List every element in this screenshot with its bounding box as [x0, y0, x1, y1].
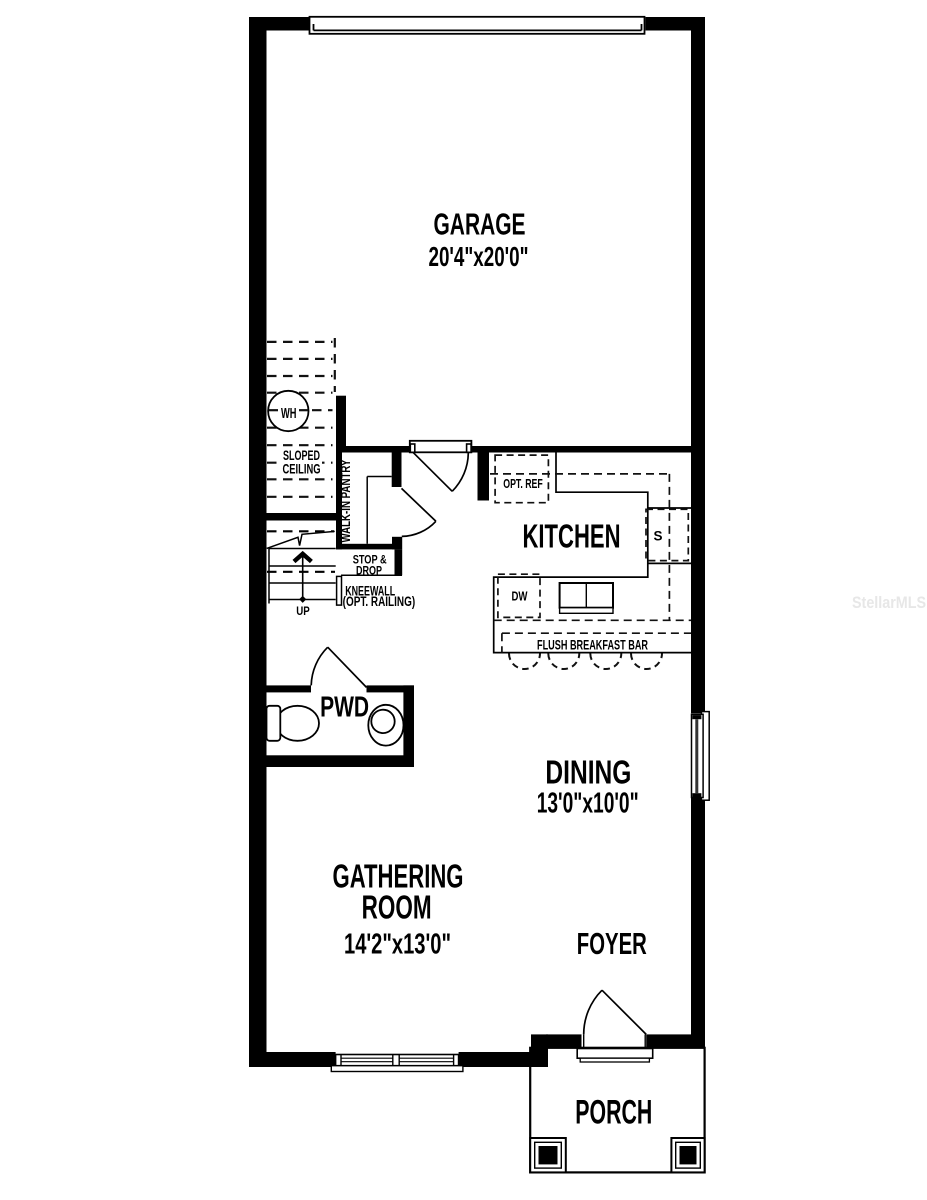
svg-text:CEILING: CEILING [283, 462, 321, 477]
svg-text:DROP: DROP [356, 564, 382, 578]
svg-text:FOYER: FOYER [577, 927, 647, 961]
svg-text:StellarMLS: StellarMLS [852, 593, 926, 612]
svg-text:WH: WH [281, 406, 297, 422]
svg-text:DW: DW [512, 588, 529, 603]
svg-text:OPT. REF: OPT. REF [503, 477, 543, 491]
svg-text:S: S [653, 529, 662, 544]
svg-text:PWD: PWD [320, 692, 369, 724]
svg-text:GARAGE: GARAGE [434, 207, 526, 242]
svg-text:FLUSH BREAKFAST BAR: FLUSH BREAKFAST BAR [537, 637, 648, 653]
svg-text:ROOM: ROOM [362, 889, 432, 926]
svg-text:DINING: DINING [545, 754, 631, 791]
svg-text:14'2"x13'0": 14'2"x13'0" [344, 929, 451, 961]
svg-text:KITCHEN: KITCHEN [523, 518, 621, 555]
svg-text:13'0"x10'0": 13'0"x10'0" [537, 788, 639, 820]
svg-text:WALK-IN PANTRY: WALK-IN PANTRY [338, 459, 353, 542]
svg-text:UP: UP [296, 606, 310, 618]
svg-text:PORCH: PORCH [575, 1094, 652, 1132]
svg-text:20'4"x20'0": 20'4"x20'0" [429, 241, 529, 272]
svg-text:(OPT. RAILING): (OPT. RAILING) [343, 594, 416, 609]
